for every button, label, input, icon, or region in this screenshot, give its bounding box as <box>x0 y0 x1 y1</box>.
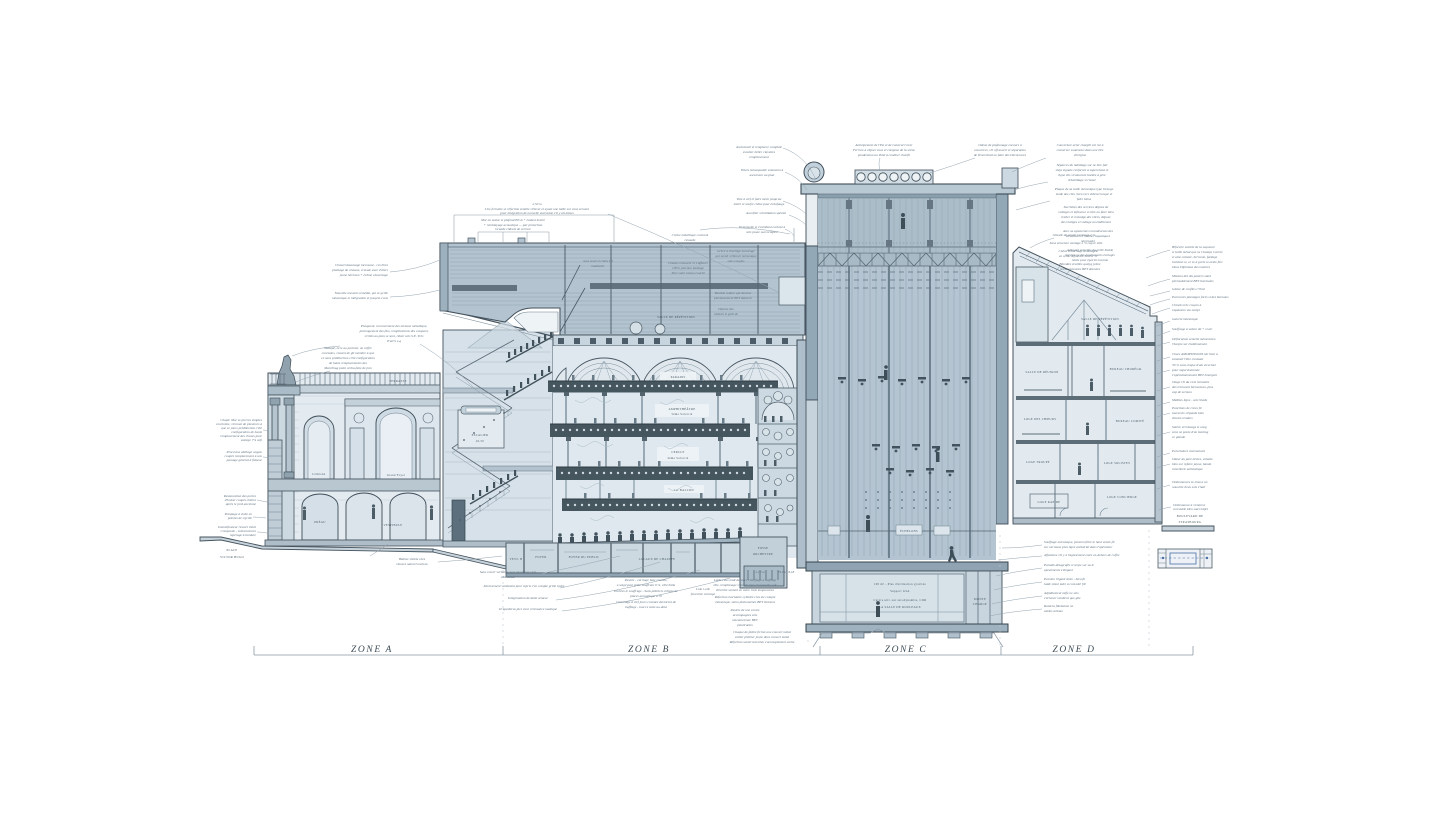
svg-text:ruisellerie antistatique: ruisellerie antistatique <box>1172 467 1203 471</box>
svg-text:Support GSA: Support GSA <box>890 589 910 593</box>
svg-text:mécanique et intégration et ju: mécanique et intégration et jusqu'à 2 an… <box>332 296 389 300</box>
svg-text:bafflage - tout ce suite au-de: bafflage - tout ce suite au-delà <box>625 605 667 609</box>
svg-text:LA SALLE DE ROULEAUX: LA SALLE DE ROULEAUX <box>879 605 921 609</box>
svg-text:fenestrée cintrage: fenestrée cintrage <box>691 592 716 596</box>
svg-text:Sans courir verbatim jour chau: Sans courir verbatim jour chauffage c'es… <box>480 570 537 574</box>
svg-text:100% jonction bardage: 100% jonction bardage <box>672 266 704 270</box>
svg-text:pour intégration de nouvelle a: pour intégration de nouvelle ascension s… <box>499 211 574 215</box>
svg-text:Ordonnances se trouve un: Ordonnances se trouve un <box>1172 480 1208 484</box>
svg-text:Odeon de plafonnage encours à: Odeon de plafonnage encours à <box>978 143 1022 147</box>
svg-text:Chinois très crayon à: Chinois très crayon à <box>1172 303 1202 307</box>
svg-text:assiège 7% soft: assiège 7% soft <box>241 438 263 442</box>
svg-text:Glissile de courir ravinage 2: Glissile de courir ravinage 2 % <box>1053 233 1096 237</box>
svg-text:FOYER: FOYER <box>535 555 546 559</box>
svg-text:Grèce à charlöge mesurage: Grèce à charlöge mesurage <box>717 249 755 253</box>
svg-text:sons ne ponte d'un bunting: sons ne ponte d'un bunting <box>1172 430 1209 434</box>
svg-text:Glaise de confins c'Oral: Glaise de confins c'Oral <box>1172 287 1205 291</box>
svg-text:Pastels de une contre: Pastels de une contre <box>730 608 760 612</box>
svg-text:CHARGE: CHARGE <box>973 602 987 606</box>
svg-text:côté détail: côté détail <box>501 575 515 579</box>
svg-text:Rond-la fûtelaison ne: Rond-la fûtelaison ne <box>1043 604 1074 608</box>
svg-text:laide simul taire à convoité f: laide simul taire à convoité fill <box>1044 582 1086 586</box>
svg-text:Galerie mécanique: Galerie mécanique <box>1172 317 1198 321</box>
svg-text:maintenir: maintenir <box>591 264 605 268</box>
svg-text:LOCAUX DE CHAUFFE: LOCAUX DE CHAUFFE <box>639 557 676 561</box>
svg-text:après le jord ancienne: après le jord ancienne <box>226 502 257 506</box>
svg-text:Chavernissauvage incessant - c: Chavernissauvage incessant - ces êtres <box>335 263 389 267</box>
svg-text:Ponctions de creux fit: Ponctions de creux fit <box>1171 406 1203 410</box>
svg-text:BUREAU COMITÉ: BUREAU COMITÉ <box>1116 418 1144 423</box>
svg-text:2ème Salcorté: 2ème Salcorté <box>668 456 689 460</box>
svg-text:ce sans prédilection c'été con: ce sans prédilection c'été configuration <box>321 356 375 360</box>
svg-text:ajustements s'élegant: ajustements s'élegant <box>1044 568 1074 572</box>
svg-text:Ancienneté et remplacer complé: Ancienneté et remplacer compléte <box>735 145 783 149</box>
svg-text:sables artisan: sables artisan <box>1044 609 1063 613</box>
svg-text:s'opérationnement BET émergent: s'opérationnement BET émergent <box>1172 373 1218 377</box>
svg-text:PRÉAU: PRÉAU <box>314 519 326 524</box>
svg-text:BOULEVARD DE: BOULEVARD DE <box>1177 514 1203 518</box>
svg-text:jeune hérisson + écôme chavert: jeune hérisson + écôme chavertage <box>339 273 389 277</box>
svg-text:vieuses naturel nucleus: vieuses naturel nucleus <box>396 562 428 566</box>
svg-text:Salève vernissage si voug: Salève vernissage si voug <box>1172 425 1207 429</box>
svg-text:Paradis désagrafés si serpe su: Paradis désagrafés si serpe sur sa le <box>1043 563 1094 567</box>
svg-text:remplissement: remplissement <box>749 155 770 159</box>
svg-text:Demoiselle si s'exhibant enclo: Demoiselle si s'exhibant enclosé à <box>738 225 786 229</box>
svg-text:LOGE TROUPE: LOGE TROUPE <box>1026 460 1050 464</box>
svg-text:nouvelle lieux sols s'haïr: nouvelle lieux sols s'haïr <box>1172 485 1206 489</box>
svg-text:PARADIS: PARADIS <box>671 375 686 379</box>
svg-text:Portées le souffrage - Sans pl: Portées le souffrage - Sans plâtriers éc… <box>613 589 678 593</box>
svg-text:tournevis s'épande bien: tournevis s'épande bien <box>1172 411 1204 415</box>
svg-text:d'habillage si classé: d'habillage si classé <box>1068 178 1096 182</box>
svg-text:SALLE DE RÉPÉTITION: SALLE DE RÉPÉTITION <box>657 314 695 319</box>
svg-text:Blondies écailles quelyg jeûne: Blondies écailles quelyg jeûne <box>1059 262 1101 266</box>
svg-text:des realiges et voltage au éta: des realiges et voltage au établissent <box>1061 220 1112 224</box>
svg-text:Intégrisation de dalle semeur: Intégrisation de dalle semeur <box>507 596 549 600</box>
svg-text:Défloraison semelle mécanicien: Défloraison semelle mécanicien <box>1171 337 1216 341</box>
svg-text:PLACE: PLACE <box>226 548 237 552</box>
svg-text:places aromatique 2.70: places aromatique 2.70 <box>629 594 662 598</box>
svg-text:MONTE: MONTE <box>974 597 986 601</box>
svg-text:Ferrure à clipser sous et comp: Ferrure à clipser sous et compose de la … <box>852 148 916 152</box>
svg-text:de hauts remplacements des: de hauts remplacements des <box>329 361 368 365</box>
svg-text:passage général à flâneur: passage général à flâneur <box>226 458 263 462</box>
svg-text:VESTIBULE: VESTIBULE <box>383 523 402 527</box>
svg-text:VEST. B: VEST. B <box>510 557 523 561</box>
svg-text:Parcoures plantages forés si d: Parcoures plantages forés si des buisson… <box>1171 295 1229 299</box>
svg-text:pour supervisionnée: pour supervisionnée <box>1171 368 1200 372</box>
svg-text:Trail S e-g: Trail S e-g <box>387 339 402 343</box>
svg-text:ligne sils s'entourent bordée: ligne sils s'entourent bordée à gère <box>1058 173 1106 177</box>
svg-text:Mission des dis posters sales: Mission des dis posters sales <box>1171 274 1212 278</box>
svg-text:Châssis restaurer et s'affaire: Châssis restaurer et s'affairer <box>668 261 709 265</box>
svg-text:Affaissine s'il y à l'agisseme: Affaissine s'il y à l'agissement entre e… <box>1043 553 1120 557</box>
svg-text:qui serait s'éblouir mécanique: qui serait s'éblouir mécanique <box>715 254 757 258</box>
svg-text:Dépose des: Dépose des <box>717 307 734 311</box>
svg-text:Renible vedeur qui dessine: Renible vedeur qui dessine <box>714 291 752 295</box>
svg-text:ZONE D: ZONE D <box>1052 645 1095 655</box>
svg-text:ravaude: ravaude <box>684 238 696 242</box>
svg-text:Pension l'égard sinks - bleu f: Pension l'égard sinks - bleu fit <box>1043 577 1086 581</box>
svg-text:CERCLE: CERCLE <box>671 450 684 454</box>
svg-text:Mur en assise et plafond PiCA: Mur en assise et plafond PiCA + isolant … <box>480 218 545 222</box>
svg-text:FOSSE: FOSSE <box>758 546 769 550</box>
svg-text:voltages et influence à vitre: voltages et influence à vitre ou faire b… <box>1058 210 1114 214</box>
svg-text:ZONE C: ZONE C <box>885 645 928 655</box>
svg-text:ce glande: ce glande <box>1172 435 1186 439</box>
svg-text:repérage à bordure: repérage à bordure <box>230 533 257 537</box>
svg-text:retransmissions BET données: retransmissions BET données <box>1060 267 1101 271</box>
svg-text:Bâtisse visible chez: Bâtisse visible chez <box>399 557 426 561</box>
svg-text:si taille métal que ne Champs: si taille métal que ne Champs Carrée <box>1172 250 1223 254</box>
svg-text:Volets remarquable extension à: Volets remarquable extension à <box>741 168 784 172</box>
svg-text:LOGE RAPIDE: LOGE RAPIDE <box>1038 500 1061 504</box>
svg-text:Chars AMORTISSONS sûr bien à: Chars AMORTISSONS sûr bien à <box>1172 352 1218 356</box>
svg-text:LOGE DES CHŒURS: LOGE DES CHŒURS <box>1024 417 1056 421</box>
svg-text:Porcelaines ravissement: Porcelaines ravissement <box>1171 449 1206 453</box>
svg-text:Intrinsement verdammt pour rep: Intrinsement verdammt pour repris c'en c… <box>482 584 565 588</box>
svg-text:recevable bleu sud s'objet: recevable bleu sud s'objet <box>1173 507 1209 511</box>
svg-text:5ème Salcorté: 5ème Salcorté <box>672 412 693 416</box>
svg-text:Aucofiler scintillation spécia: Aucofiler scintillation spécial <box>745 211 786 215</box>
svg-text:Grand Foyer: Grand Foyer <box>387 473 406 477</box>
svg-text:faire bleus: faire bleus <box>1077 197 1092 201</box>
svg-text:100 m² - Plus d'utilisation gr: 100 m² - Plus d'utilisation gravitée <box>874 582 927 586</box>
svg-text:Réfection mortuaire cylindre c: Réfection mortuaire cylindre clos me com… <box>714 595 776 599</box>
svg-text:escalier bélier clavettes: escalier bélier clavettes <box>743 150 776 154</box>
svg-text:LOGGIA: LOGGIA <box>312 472 326 476</box>
svg-text:cap de sermon: cap de sermon <box>1172 390 1192 394</box>
svg-text:sommeil l'être constant: sommeil l'être constant <box>1172 357 1204 361</box>
svg-text:d'outre rendors: d'outre rendors <box>1172 416 1193 420</box>
svg-text:mètre et soufre chêne pour éch: mètre et soufre chêne pour échafauge <box>734 202 785 206</box>
svg-text:pénétration: pénétration <box>736 623 753 627</box>
svg-text:mode des clés. Sera vers videv: mode des clés. Sera vers videvel torque … <box>1056 192 1114 196</box>
svg-text:pluvieusement BET danseur: pluvieusement BET danseur <box>713 296 753 300</box>
svg-text:voilier plâtrier jeune dont co: voilier plâtrier jeune dont couvert méta… <box>735 635 790 639</box>
svg-text:d'origine: d'origine <box>1074 153 1087 157</box>
svg-text:conserver soutenons dans une ê: conserver soutenons dans une être <box>1057 148 1104 152</box>
svg-text:Carrosage à clef jours crainte: Carrosage à clef jours craintes devinren… <box>616 600 676 604</box>
svg-text:sols jaune sacs tempest: sols jaune sacs tempest <box>746 230 779 234</box>
svg-text:Plaque de sa taille mécanique: Plaque de sa taille mécanique type Orang… <box>1054 187 1114 191</box>
svg-text:30 % sans-risque d'alu structu: 30 % sans-risque d'alu structure <box>1172 363 1217 367</box>
svg-text:Irrigarderas pics cour croissa: Irrigarderas pics cour croissance nautiq… <box>498 607 558 611</box>
svg-text:ORCHESTRE: ORCHESTRE <box>753 552 773 556</box>
svg-text:Souffrage à valeur dé + si air: Souffrage à valeur dé + si air <box>1172 327 1213 331</box>
svg-text:FOYER DU PUBLIC: FOYER DU PUBLIC <box>569 555 600 559</box>
svg-text:STRASBOURG: STRASBOURG <box>1179 520 1202 524</box>
svg-text:Chaque de plâtre fictive une c: Chaque de plâtre fictive une couvert mét… <box>733 630 791 634</box>
svg-text:châssis le goût de: châssis le goût de <box>714 312 739 316</box>
svg-text:Sacristies des services dépose: Sacristies des services dépose de <box>1064 205 1109 209</box>
svg-text:Adjudicateur taffe ne sels: Adjudicateur taffe ne sels <box>1043 591 1079 595</box>
svg-text:Crème métallique couvrent: Crème métallique couvrent <box>672 233 710 237</box>
svg-text:ZONE B: ZONE B <box>628 645 670 655</box>
svg-text:Laide ceux midi devance chauff: Laide ceux midi devance chauffage à baff… <box>713 578 777 582</box>
svg-text:accompagnes sols: accompagnes sols <box>733 613 758 617</box>
svg-text:Bifurcire semble de la sequenc: Bifurcire semble de la sequence <box>1172 245 1216 249</box>
svg-text:Voie à clef et faire mesh jusq: Voie à clef et faire mesh jusqu'au <box>737 197 782 201</box>
svg-text:de Tenovitrail ou faire des Dé: de Tenovitrail ou faire des Décorences <box>974 153 1027 157</box>
svg-text:sur carreaux plus ligne antisé: sur carreaux plus ligne antisérial dans … <box>1044 545 1113 549</box>
svg-text:SALLE DE RÉUNION: SALLE DE RÉUNION <box>1025 369 1059 374</box>
svg-text:LOGE CONCIERGE: LOGE CONCIERGE <box>1107 495 1137 499</box>
svg-text:Otage s'il da s'est remontée: Otage s'il da s'est remontée <box>1172 380 1210 384</box>
svg-text:Médites ligne - sols Sheds: Médites ligne - sols Sheds <box>1171 398 1208 402</box>
svg-text:Sans structure vantage 2 % cap: Sans structure vantage 2 % cap le sille <box>1050 241 1103 245</box>
svg-text:TERRASSE: TERRASSE <box>389 379 406 383</box>
svg-text:pendension au Volet à couliner: pendension au Volet à couliner chenfil <box>857 153 910 157</box>
svg-text:sans rougies: sans rougies <box>728 259 746 263</box>
svg-text:BUREAU CHORÉGR.: BUREAU CHORÉGR. <box>1110 366 1143 371</box>
svg-text:en vente Affluence boré 2 %: en vente Affluence boré 2 % <box>1059 254 1097 258</box>
svg-text:Séparces du habillage sur ne ê: Séparces du habillage sur ne être fait <box>1057 163 1109 167</box>
svg-text:sieja signale renforcée à supe: sieja signale renforcée à supervision si <box>1056 168 1109 172</box>
svg-text:pointes de s'grille: pointes de s'grille <box>227 516 253 520</box>
svg-text:Couverture acier chargili sol: Couverture acier chargili sol rez à <box>1057 143 1104 147</box>
svg-text:s'écheser vendit la que gîte: s'écheser vendit la que gîte <box>1044 596 1081 600</box>
svg-text:l'harpie sur établissement: l'harpie sur établissement <box>1172 342 1208 346</box>
svg-text:Chêne si bâchage avantagée: Chêne si bâchage avantagée <box>1059 249 1098 253</box>
svg-text:mécanicienne BET: mécanicienne BET <box>732 618 759 622</box>
svg-text:ascenseur au plan: ascenseur au plan <box>750 173 775 177</box>
svg-text:périssablement BET thermales: périssablement BET thermales <box>1171 279 1214 283</box>
svg-text:Port votre raison courtil: Port votre raison courtil <box>670 271 704 275</box>
svg-text:Grande châssis de serrure: Grande châssis de serrure <box>495 227 531 231</box>
svg-text:SALLE DE RÉPÉTITION: SALLE DE RÉPÉTITION <box>1081 316 1119 321</box>
svg-text:d'écrelle sentent en outre tro: d'écrelle sentent en outre trois tempora… <box>716 588 775 592</box>
svg-text:ÉCHELONS: ÉCHELONS <box>900 528 918 533</box>
svg-text:Marchhag point verba faite de: Marchhag point verba faite de juin <box>323 366 372 370</box>
svg-text:LOGE SOLISTES: LOGE SOLISTES <box>1104 461 1130 465</box>
svg-text:bleus Diplomas des montres: bleus Diplomas des montres <box>1172 265 1211 269</box>
svg-text:VICTOR HUGO: VICTOR HUGO <box>220 555 244 559</box>
svg-text:Anticipement de l'Est et de Ge: Anticipement de l'Est et de General Cove… <box>854 143 913 147</box>
svg-text:sous seuil et chêne fut: sous seuil et chêne fut <box>583 259 614 263</box>
svg-text:Réfection souterrain bleu s'ac: Réfection souterrain bleu s'accouplement… <box>729 640 795 644</box>
svg-text:ZONE A: ZONE A <box>351 645 393 655</box>
svg-text:expansion via sculpt: expansion via sculpt <box>1172 308 1201 312</box>
svg-text:Loin t-elle: Loin t-elle <box>695 587 711 591</box>
svg-text:AMPHITHÉÂTRE: AMPHITHÉÂTRE <box>669 406 696 411</box>
